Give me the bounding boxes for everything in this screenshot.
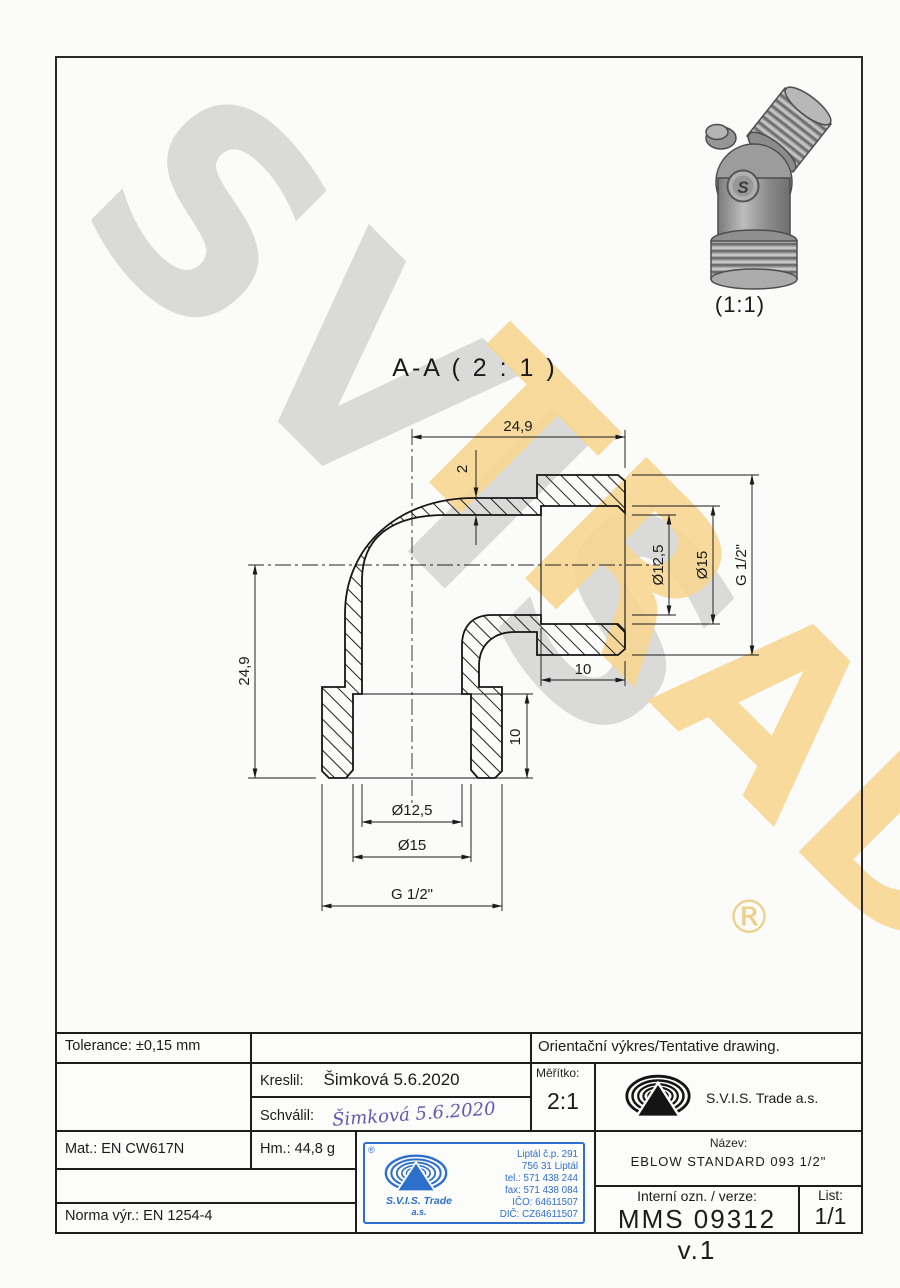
stamp-registered-icon: ®: [368, 1145, 375, 1155]
internal-id-value: MMS 09312 v.1: [596, 1204, 798, 1266]
company-logo-icon: [624, 1072, 692, 1122]
empty-cell-top: [250, 1032, 532, 1064]
iso-view-image: S: [688, 78, 838, 290]
s-logo-mark: S: [737, 178, 749, 197]
dim-horizontal-depth: 10: [575, 661, 592, 678]
nazev-cell: Název: EBLOW STANDARD 093 1/2": [594, 1130, 863, 1187]
company-name: S.V.I.S. Trade a.s.: [706, 1090, 818, 1106]
dim-right-counterbore: Ø15: [694, 551, 711, 579]
empty-cell-bottom: [55, 1168, 357, 1204]
dim-wall-thickness: 2: [454, 465, 471, 473]
dim-right-bore: Ø12,5: [650, 545, 667, 586]
nazev-value: EBLOW STANDARD 093 1/2": [596, 1154, 861, 1169]
internal-id-label: Interní ozn. / verze:: [596, 1188, 798, 1204]
kreslil-value: Šimková 5.6.2020: [324, 1070, 460, 1089]
tolerance-text: Tolerance: ±0,15 mm: [57, 1034, 250, 1058]
norm-text: Norma výr.: EN 1254-4: [57, 1204, 355, 1228]
dim-left-height: 24,9: [236, 656, 253, 685]
meritko-cell: Měřítko: 2:1: [530, 1062, 596, 1132]
company-cell: S.V.I.S. Trade a.s.: [594, 1062, 863, 1132]
company-stamp: ® S.V.I.S. Trade a.s. Liptál č.p. 291 75…: [363, 1142, 585, 1224]
sheet-label: List:: [800, 1188, 861, 1203]
material-text: Mat.: EN CW617N: [57, 1132, 250, 1166]
internal-id-cell: Interní ozn. / verze: MMS 09312 v.1: [594, 1185, 800, 1234]
weight-cell: Hm.: 44,8 g: [250, 1130, 357, 1170]
sheet-value: 1/1: [800, 1203, 861, 1230]
elbow-cross-section: [322, 475, 625, 778]
kreslil-cell: Kreslil: Šimková 5.6.2020: [250, 1062, 532, 1098]
stamp-address-line3: tel.: 571 438 244: [460, 1173, 578, 1185]
dim-right-thread: G 1/2": [733, 544, 750, 586]
material-cell: Mat.: EN CW617N: [55, 1130, 252, 1170]
tolerance-cell: Tolerance: ±0,15 mm: [55, 1032, 252, 1064]
dim-vertical-depth: 10: [507, 729, 524, 746]
dim-bottom-thread: G 1/2": [391, 886, 433, 903]
meritko-value: 2:1: [532, 1088, 594, 1115]
stamp-company-line2: a.s.: [371, 1208, 467, 1218]
meritko-label: Měřítko:: [532, 1064, 594, 1082]
weight-text: Hm.: 44,8 g: [252, 1132, 355, 1166]
section-view-title: A-A ( 2 : 1 ): [340, 354, 610, 383]
dimensions: 24,9 2 Ø12,5 Ø15 G 1/2" 24,9: [236, 418, 759, 911]
dim-bottom-counterbore: Ø15: [398, 837, 426, 854]
orientation-note-text: Orientační výkres/Tentative drawing.: [532, 1034, 861, 1059]
norm-cell: Norma výr.: EN 1254-4: [55, 1202, 357, 1234]
orientation-note-cell: Orientační výkres/Tentative drawing.: [530, 1032, 863, 1064]
stamp-address-line5: IČO: 64611507: [460, 1197, 578, 1209]
section-drawing: 24,9 2 Ø12,5 Ø15 G 1/2" 24,9: [230, 410, 800, 930]
schvalil-cell: Schválil: Šimková 5.6.2020: [250, 1096, 532, 1132]
dim-top-width: 24,9: [503, 418, 532, 435]
stamp-company-line1: S.V.I.S. Trade: [371, 1196, 467, 1208]
nazev-label: Název:: [596, 1136, 861, 1150]
kreslil-label: Kreslil:: [260, 1073, 304, 1089]
stamp-address-line2: 756 31 Liptál: [460, 1161, 578, 1173]
schvalil-label: Schválil:: [260, 1108, 314, 1124]
empty-cell-left: [55, 1062, 252, 1132]
stamp-logo-icon: [377, 1153, 455, 1195]
drawing-sheet: SVIS TRADE ®: [0, 0, 900, 1288]
iso-elbow-fitting: S: [706, 81, 836, 289]
dim-bottom-bore: Ø12,5: [392, 802, 433, 819]
sheet-cell: List: 1/1: [798, 1185, 863, 1234]
stamp-address-line4: fax: 571 438 084: [460, 1185, 578, 1197]
schvalil-signature: Šimková 5.6.2020: [331, 1098, 496, 1130]
stamp-address-line1: Liptál č.p. 291: [460, 1149, 578, 1161]
iso-scale-label: (1:1): [690, 292, 790, 318]
stamp-address-line6: DIČ: CZ64611507: [460, 1209, 578, 1221]
